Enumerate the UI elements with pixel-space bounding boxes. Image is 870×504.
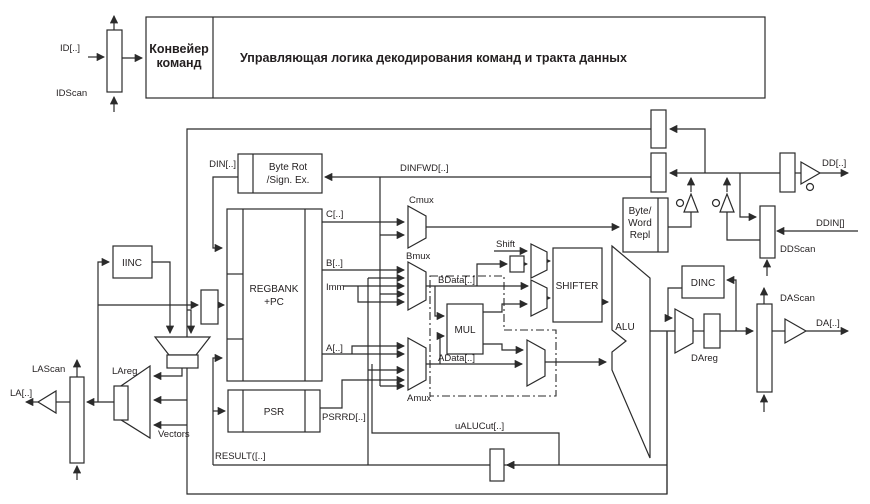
pipeline-box-label-1: Конвейер: [149, 42, 209, 56]
ddscan-label: DDScan: [780, 244, 815, 255]
dd-bus-label: DD[..]: [822, 158, 846, 169]
dareg-mux: [675, 309, 693, 353]
result-latch: [490, 449, 504, 481]
dareg-latch: [704, 314, 720, 348]
pipe-latch-top: [651, 110, 666, 148]
ddscan-latch: [760, 206, 775, 258]
dascan-label: DAScan: [780, 293, 815, 304]
control-logic-label: Управляющая логика декодирования команд …: [240, 51, 627, 65]
amux-shape: [408, 338, 426, 390]
alu-shape: [612, 246, 650, 458]
ualucut-label: uALUCut[..]: [455, 421, 504, 432]
byte-rot-label-1: Byte Rot: [269, 162, 308, 173]
amux-label: Amux: [407, 393, 432, 404]
regbank-box: [227, 209, 322, 381]
adata-label: AData[..]: [438, 353, 475, 364]
dareg-label: DAreg: [691, 353, 718, 364]
adata-mux: [527, 340, 545, 386]
datapath-diagram: ID[..] IDScan Конвейер команд Управляюща…: [0, 0, 870, 504]
bdata-mux: [531, 280, 547, 316]
cmux-label: Cmux: [409, 195, 434, 206]
iinc-label: IINC: [122, 258, 142, 269]
pc-mux: [155, 337, 210, 368]
dd-buffer: [801, 162, 820, 191]
vectors-label: Vectors: [158, 429, 190, 440]
result-label: RESULT([..]: [215, 451, 266, 462]
din-label: DIN[..]: [209, 159, 236, 170]
da-buffer: [785, 319, 806, 343]
dascan-latch: [757, 304, 772, 392]
tristate-buffer-bw: [677, 194, 699, 212]
byte-word-label-1: Byte/: [629, 206, 652, 217]
bdata-label: BData[..]: [438, 275, 475, 286]
shift-latch: [510, 256, 524, 272]
idscan-label: IDScan: [56, 88, 87, 99]
lascan-latch: [70, 377, 84, 463]
bmux-shape: [408, 262, 426, 310]
cmux-shape: [408, 206, 426, 248]
la-buffer: [38, 391, 56, 413]
lareg-label: LAreg: [112, 366, 137, 377]
a-bus-label: A[..]: [326, 343, 343, 354]
imm-label: Imm: [326, 282, 345, 293]
pipeline-box-label-2: команд: [156, 56, 201, 70]
shift-label: Shift: [496, 239, 515, 250]
pipe-latch-dinfwd: [651, 153, 666, 192]
id-bus-label: ID[..]: [60, 43, 80, 54]
byte-rot-label-2: /Sign. Ex.: [267, 175, 310, 186]
byte-word-label-2: Word: [628, 218, 652, 229]
lascan-label: LAScan: [32, 364, 65, 375]
da-bus-label: DA[..]: [816, 318, 840, 329]
b-bus-label: B[..]: [326, 258, 343, 269]
regbank-label-2: +PC: [264, 297, 284, 308]
tristate-buffer-ddin: [713, 194, 735, 212]
psr-label: PSR: [264, 407, 285, 418]
c-bus-label: C[..]: [326, 209, 343, 220]
dd-latch: [780, 153, 795, 192]
id-latch: [107, 30, 122, 92]
psrrd-label: PSRRD[..]: [322, 412, 366, 423]
shifter-label: SHIFTER: [556, 281, 599, 292]
alu-label: ALU: [615, 322, 634, 333]
byte-word-label-3: Repl: [630, 230, 651, 241]
dinfwd-label: DINFWD[..]: [400, 163, 449, 174]
byte-rot-box: [238, 154, 322, 193]
dinc-label: DINC: [691, 278, 715, 289]
mul-label: MUL: [454, 325, 476, 336]
la-bus-label: LA[..]: [10, 388, 32, 399]
bmux-label: Bmux: [406, 251, 431, 262]
ddin-label: DDIN[]: [816, 218, 845, 229]
shift-mux: [531, 244, 547, 278]
regbank-input-latch: [201, 290, 218, 324]
regbank-label-1: REGBANK: [250, 284, 299, 295]
